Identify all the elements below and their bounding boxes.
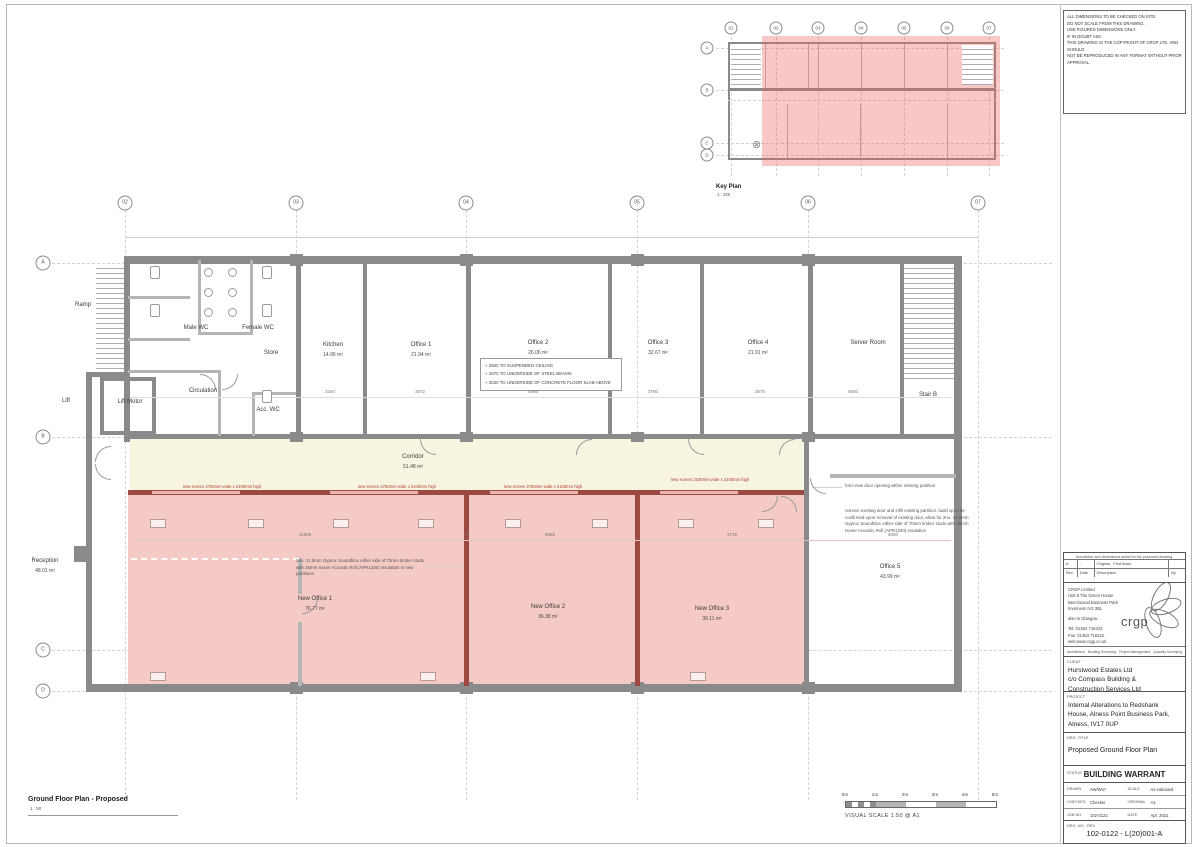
room-label-new-office-2: New Office 236.38 m² xyxy=(531,602,565,622)
grid-bubble: 06 xyxy=(941,22,954,35)
room-label-male-wc: Male WC xyxy=(184,323,209,334)
general-notes: ALL DIMENSIONS TO BE CHECKED ON SITE. DO… xyxy=(1063,10,1186,114)
wc-fixture xyxy=(204,288,213,297)
grid-bubble: 03 xyxy=(812,22,825,35)
scale-bar: 0m 1m 2m 3m 4m 5m VISUAL SCALE 1:50 @ A1 xyxy=(845,793,1005,825)
new-partition-wall xyxy=(464,495,469,686)
stair-hatch xyxy=(904,264,954,380)
key-plan-title: Key Plan xyxy=(716,184,741,190)
grid-bubble: B xyxy=(701,84,714,97)
client-section: CLIENT Hurstwood Estates Ltd c/o Compass… xyxy=(1064,657,1185,692)
room-label-store: Store xyxy=(264,348,278,359)
grid-bubble: 01 xyxy=(725,22,738,35)
scale-bar-label: 5m xyxy=(992,793,999,798)
dimension-text: 5920 xyxy=(848,389,858,394)
wall xyxy=(128,256,962,264)
wall xyxy=(363,260,367,436)
wall xyxy=(700,260,704,436)
company-address: CRGP Limited Unit 8 The Green House Beec… xyxy=(1068,587,1118,645)
wall xyxy=(808,260,813,436)
glazed-screen xyxy=(490,491,578,494)
infill-partition-note: remove existing door and infill existing… xyxy=(845,508,971,534)
dimension-text: 3675 xyxy=(755,389,765,394)
caption-underline xyxy=(28,815,178,816)
new-screen-note: new screen 2100mm wide x 2100mm high xyxy=(671,477,749,482)
wc-fixture xyxy=(204,268,213,277)
dimension-line xyxy=(131,397,951,398)
wc-fixture xyxy=(204,308,213,317)
stair-hatch xyxy=(962,45,993,85)
room-label-circulation: Circulation xyxy=(189,386,217,397)
dimension-text: 3790 xyxy=(648,389,658,394)
title-column-divider xyxy=(1060,4,1061,842)
wall xyxy=(466,260,471,436)
revision-header: Rev. Date Description By xyxy=(1064,568,1185,577)
room-label-office-3: Office 332.67 m² xyxy=(648,338,669,358)
logo-text: crgp xyxy=(1121,614,1148,629)
desk xyxy=(592,519,608,528)
glazed-screen xyxy=(330,491,418,494)
room-label-stair: Stair B xyxy=(919,390,937,401)
desk xyxy=(418,519,434,528)
demolished-wall-dashed xyxy=(131,558,299,560)
ramp-hatch xyxy=(96,264,124,370)
room-label-corridor: Corridor51.48 m² xyxy=(402,452,424,472)
grid-bubble: A xyxy=(36,256,51,271)
grid-bubble: A xyxy=(701,42,714,55)
wall xyxy=(830,474,956,478)
project-section: PROJECT Internal Alterations to Redshank… xyxy=(1064,692,1185,733)
dimension-text: 3715 xyxy=(727,532,737,537)
desk xyxy=(678,519,694,528)
scale-bar-label: 4m xyxy=(962,793,969,798)
grid-bubble: 04 xyxy=(459,196,474,211)
wall xyxy=(86,684,962,692)
scale-bar-caption: VISUAL SCALE 1:50 @ A1 xyxy=(845,813,920,819)
wc-fixture xyxy=(150,304,160,317)
new-screen-note: new screen 2750mm wide x 2100mm high xyxy=(183,484,261,489)
desk xyxy=(420,672,436,681)
grid-bubble: C xyxy=(36,643,51,658)
desk xyxy=(248,519,264,528)
dimension-text: 4966 xyxy=(528,389,538,394)
room-label-new-office-1: New Office 176.77 m² xyxy=(298,594,332,614)
wc-fixture xyxy=(262,390,272,403)
wc-fixture xyxy=(228,268,237,277)
dimension-line xyxy=(125,237,978,238)
room-label-office-1: Office 121.94 m² xyxy=(411,340,432,360)
glazed-screen xyxy=(660,491,738,494)
desk xyxy=(690,672,706,681)
revision-row: A - Original - First Issue xyxy=(1064,559,1185,568)
grid-bubble: 03 xyxy=(289,196,304,211)
dimension-text: 11905 xyxy=(299,532,311,537)
wall xyxy=(252,392,296,395)
wall xyxy=(608,260,612,436)
new-screen-note: new screen 2750mm wide x 2100mm high xyxy=(504,484,582,489)
new-partition-wall xyxy=(635,495,640,686)
company-section: CRGP Limited Unit 8 The Green House Beec… xyxy=(1064,583,1185,657)
desk xyxy=(505,519,521,528)
grid-bubble: 06 xyxy=(801,196,816,211)
scale-bar-rule xyxy=(845,801,997,808)
scale-bar-label: 1m xyxy=(872,793,879,798)
wc-fixture xyxy=(262,304,272,317)
leader-line xyxy=(424,566,464,567)
wc-fixture xyxy=(262,266,272,279)
grid-bubble: 05 xyxy=(898,22,911,35)
wall xyxy=(128,370,220,373)
wc-fixture xyxy=(228,288,237,297)
room-label-acc-wc: Acc. WC xyxy=(256,405,279,416)
dimension-line xyxy=(131,540,951,541)
drg-no-section: DRG. NO. -REV 102-0122 - L(20)001-A xyxy=(1064,821,1185,843)
desk xyxy=(150,519,166,528)
entrance-block xyxy=(74,546,92,562)
new-screen-note: new screen 2750mm wide x 2100mm high xyxy=(358,484,436,489)
room-label-lift: Lift xyxy=(62,396,70,407)
status-section: STATUS BUILDING WARRANT xyxy=(1064,766,1185,783)
scale-bar-label: 2m xyxy=(902,793,909,798)
column xyxy=(631,432,644,442)
wall xyxy=(128,338,190,341)
column xyxy=(631,254,644,266)
key-plan: ⊗ 01 02 03 04 05 06 07 A B C D Key Plan … xyxy=(690,8,1030,208)
drg-title-section: DRG. TITLE Proposed Ground Floor Plan xyxy=(1064,733,1185,766)
wall xyxy=(86,372,92,690)
drawing-caption-title: Ground Floor Plan - Proposed xyxy=(28,796,128,803)
revision-note: Annotation and dimensions added to the p… xyxy=(1064,553,1185,559)
grid-bubble: B xyxy=(36,430,51,445)
room-label-server-room: Server Room xyxy=(850,338,885,349)
rooflight-symbol: ⊗ xyxy=(752,138,761,151)
grid-bubble: 07 xyxy=(983,22,996,35)
room-label-reception: Reception48.01 m² xyxy=(31,556,58,576)
ceiling-heights-note: + 2650 TO SUSPENDED CEILING + 2970 TO UN… xyxy=(480,358,622,391)
room-label-office-4: Office 421.91 m² xyxy=(748,338,769,358)
desk xyxy=(758,519,774,528)
dimension-text: 5685 xyxy=(545,532,555,537)
desk xyxy=(150,672,166,681)
wall xyxy=(298,622,302,686)
crgp-logo: crgp xyxy=(1121,585,1183,641)
grid-bubble: 05 xyxy=(630,196,645,211)
title-block: Annotation and dimensions added to the p… xyxy=(1063,552,1186,844)
door-opening-note: form new door opening within existing pa… xyxy=(845,483,977,490)
company-services: Architecture Building Surveying Project … xyxy=(1064,646,1185,656)
wc-fixture xyxy=(228,308,237,317)
wall xyxy=(296,260,301,436)
dimension-text: 5050 xyxy=(888,532,898,537)
grid-bubble: 07 xyxy=(971,196,986,211)
dimension-text: 3340 xyxy=(325,389,335,394)
scale-bar-label: 3m xyxy=(932,793,939,798)
scale-bar-label: 0m xyxy=(842,793,849,798)
fields-section: DRAWNAW/WVI SCALEAs indicated CHECKEDChe… xyxy=(1064,783,1185,821)
key-plan-scale: 1 : 200 xyxy=(717,192,730,197)
room-label-office-5: Office 543.99 m² xyxy=(880,562,901,582)
room-label-kitchen: Kitchen14.06 m² xyxy=(323,340,343,360)
grid-bubble: 04 xyxy=(855,22,868,35)
grid-bubble: D xyxy=(701,149,714,162)
dimension-text: 3672 xyxy=(415,389,425,394)
room-label-new-office-3: New Office 336.11 m² xyxy=(695,604,729,624)
grid-line xyxy=(978,210,979,800)
wall xyxy=(218,370,221,436)
wall xyxy=(128,296,190,299)
partition-build-up-note: 2no. 12.5mm Gyproc Soundbloc either side… xyxy=(296,558,424,578)
room-label-office-2: Office 226.06 m² xyxy=(528,338,549,358)
desk xyxy=(333,519,349,528)
grid-bubble: 02 xyxy=(770,22,783,35)
wall xyxy=(252,392,255,436)
drawing-caption-scale: 1 : 50 xyxy=(30,806,41,811)
grid-bubble: D xyxy=(36,684,51,699)
dimension-text: 75 xyxy=(464,532,469,537)
room-label-female-wc: Female WC xyxy=(242,323,274,334)
room-label-lift-motor: Lift Motor xyxy=(117,397,142,408)
grid-bubble: 02 xyxy=(118,196,133,211)
wall xyxy=(804,439,809,690)
stair-hatch xyxy=(731,45,761,85)
wc-fixture xyxy=(150,266,160,279)
revision-section: Annotation and dimensions added to the p… xyxy=(1064,553,1185,583)
glazed-screen xyxy=(152,491,240,494)
room-label-ramp: Ramp xyxy=(75,300,91,311)
